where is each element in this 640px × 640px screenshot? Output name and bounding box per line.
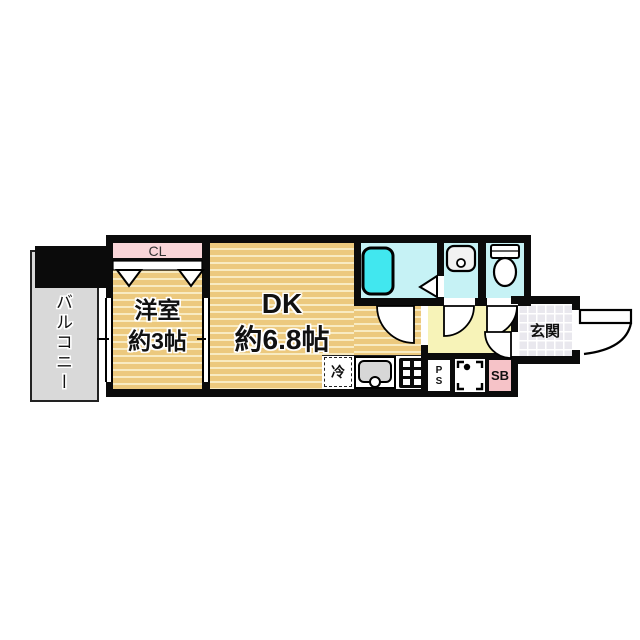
- pipe-space-label: P S: [428, 360, 450, 391]
- washer-faucet-dot-icon: [464, 364, 470, 370]
- western-room-name: 洋室: [135, 295, 181, 326]
- floor-plan-canvas: バルコニー CL 洋室 約3帖 DK 約6.8帖 玄関 冷 P S SB: [0, 0, 640, 640]
- western-room-label: 洋室 約3帖: [110, 293, 205, 359]
- entrance-inner-door-swing: [485, 332, 511, 358]
- closet-bifold-door-icon-2: [179, 270, 203, 286]
- bathtub: [363, 248, 393, 294]
- pipe-space-s: S: [436, 376, 443, 387]
- dk-label: DK 約6.8帖: [210, 285, 354, 359]
- dk-name: DK: [262, 286, 302, 322]
- entrance-inner-opening: [511, 332, 518, 356]
- entrance-label: 玄関: [518, 304, 572, 356]
- closet-label: CL: [113, 242, 202, 259]
- toilet-bowl: [494, 258, 516, 286]
- bath-folding-door-icon: [420, 276, 437, 297]
- closet-door-track: [113, 261, 202, 270]
- washroom-door-swing: [444, 306, 474, 336]
- balcony-label: バルコニー: [30, 288, 95, 398]
- western-room-size: 約3帖: [128, 326, 187, 357]
- entrance-door-leaf: [580, 310, 631, 323]
- shoe-box-label: SB: [489, 360, 511, 391]
- kitchen-faucet-icon: [370, 377, 380, 387]
- washbasin-drain-icon: [457, 259, 465, 267]
- pipe-space-p: P: [436, 365, 443, 376]
- dk-size: 約6.8帖: [235, 322, 330, 358]
- refrigerator-label: 冷: [324, 357, 352, 387]
- dk-door-swing: [377, 306, 414, 343]
- closet-bifold-door-icon: [117, 270, 141, 286]
